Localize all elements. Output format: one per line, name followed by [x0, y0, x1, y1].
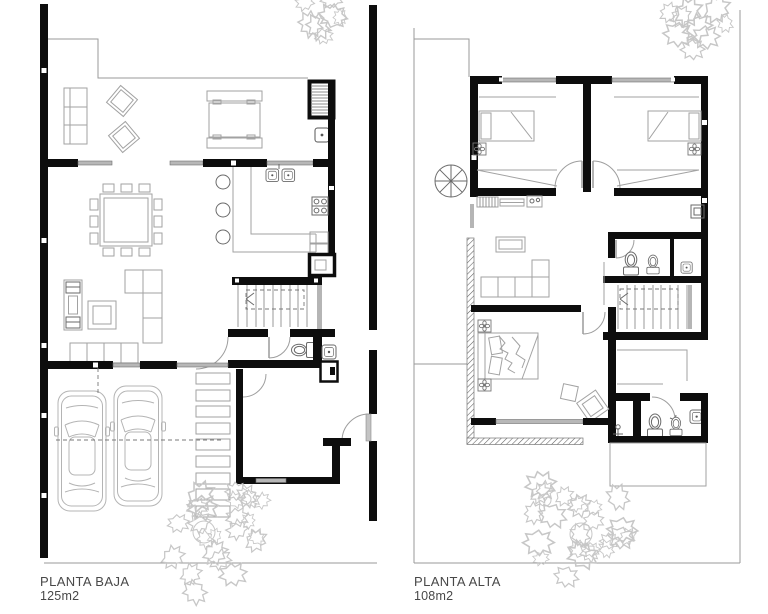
floor-plan-drawing [0, 0, 768, 614]
tv-shelf-unit [64, 280, 82, 330]
floor-plan-sheet: PLANTA BAJA 125m2 PLANTA ALTA 108m2 [0, 0, 768, 614]
plan-caption-baja: PLANTA BAJA 125m2 [40, 574, 129, 604]
stairs-ground [228, 277, 335, 337]
stove [312, 197, 328, 215]
plan-title-baja: PLANTA BAJA [40, 574, 129, 589]
kitchen-east-wall [328, 80, 335, 277]
corner-sofa [125, 270, 162, 343]
plan-planta-baja [40, 4, 377, 563]
terrace-interior-wall [48, 159, 335, 167]
upper-bathroom-1 [603, 232, 706, 283]
tree-circle-symbol [435, 165, 467, 197]
water-heater [315, 128, 329, 142]
three-seat-sofa [70, 343, 138, 363]
bedroom-1 [473, 97, 557, 186]
plan-area-alta: 108m2 [414, 589, 501, 604]
upper-bathroom-2 [608, 393, 708, 486]
plan-title-alta: PLANTA ALTA [414, 574, 501, 589]
lounge [481, 237, 604, 305]
stairs-upper [603, 285, 706, 384]
plan-caption-alta: PLANTA ALTA 108m2 [414, 574, 501, 604]
entry-gate-door [342, 414, 371, 441]
plan-area-baja: 125m2 [40, 589, 129, 604]
patio-lounge-chairs [107, 86, 140, 153]
armchair [88, 301, 116, 329]
vestibule [236, 362, 351, 485]
kitchen-double-sink [266, 164, 295, 182]
balcony-parapet [467, 238, 583, 445]
master-bedroom [471, 305, 616, 443]
bar-stools [216, 175, 230, 244]
desk-shelf [477, 196, 542, 207]
bedroom-2 [614, 97, 701, 186]
patio-table-with-benches [207, 91, 262, 148]
terrace-sofa [64, 88, 87, 144]
bedroom-divider-wall [583, 76, 591, 192]
plan-planta-alta [414, 10, 740, 563]
dining-table [90, 184, 162, 256]
